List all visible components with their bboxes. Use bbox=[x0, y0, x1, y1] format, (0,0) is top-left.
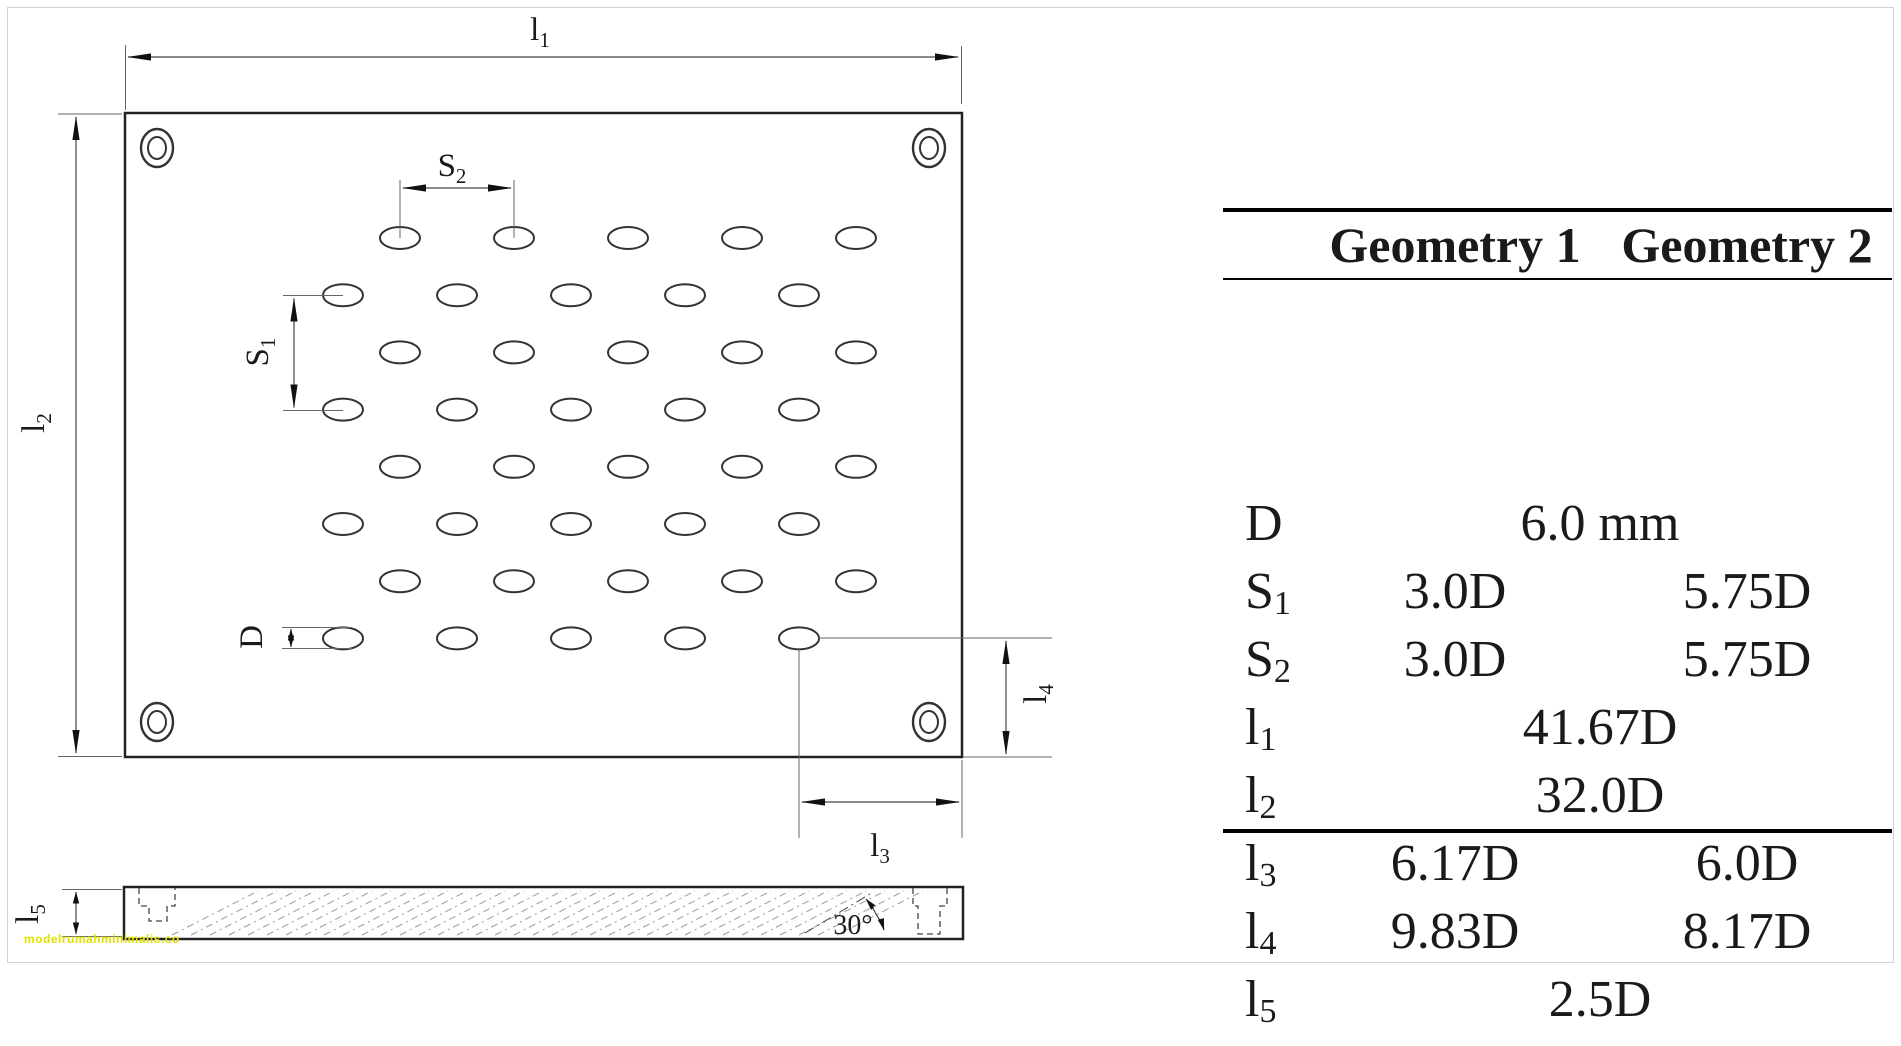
row-value-shared: 41.67D bbox=[1523, 694, 1678, 762]
table-row: l4 9.83D 8.17D bbox=[1223, 898, 1892, 966]
table-row: l1 41.67D bbox=[1223, 694, 1892, 762]
row-label: l5 bbox=[1245, 966, 1276, 1046]
hole-array bbox=[323, 227, 876, 649]
counterbore-hidden-left bbox=[139, 888, 175, 921]
label-s2: S2 bbox=[438, 148, 467, 188]
figure-page: { "page": { "background": "#ffffff", "fr… bbox=[0, 0, 1901, 970]
corner-hole-bottom-right bbox=[913, 703, 945, 741]
label-l3: l3 bbox=[870, 828, 890, 868]
corner-hole-top-right bbox=[913, 129, 945, 167]
table-row: l2 32.0D bbox=[1223, 762, 1892, 830]
geometry-parameter-table: Geometry 1 Geometry 2 D 6.0 mm S1 3.0D 5… bbox=[1223, 208, 1892, 833]
table-header-rule bbox=[1223, 278, 1892, 280]
row-value-geometry-1: 9.83D bbox=[1391, 898, 1520, 966]
table-bottom-rule bbox=[1223, 829, 1892, 833]
corner-hole-bottom-left bbox=[141, 703, 173, 741]
table-row: l5 2.5D bbox=[1223, 966, 1892, 1034]
label-d: D bbox=[234, 625, 270, 649]
row-value-geometry-2: 5.75D bbox=[1683, 558, 1812, 626]
table-row: D 6.0 mm bbox=[1223, 490, 1892, 558]
extension-lines bbox=[58, 45, 1052, 937]
watermark: modelrumahminimalis.co bbox=[24, 932, 180, 946]
column-header-geometry-2: Geometry 2 bbox=[1621, 212, 1872, 278]
row-value-geometry-1: 3.0D bbox=[1404, 558, 1507, 626]
label-s1: S1 bbox=[240, 338, 280, 367]
column-header-geometry-1: Geometry 1 bbox=[1329, 212, 1580, 278]
label-l4: l4 bbox=[1018, 684, 1058, 704]
technical-drawing: l1 l2 S2 S1 D l3 l4 l5 30° bbox=[0, 0, 1120, 970]
label-l5: l5 bbox=[10, 904, 50, 924]
label-l2: l2 bbox=[16, 413, 56, 433]
row-value-shared: 32.0D bbox=[1536, 762, 1665, 830]
table-row: S1 3.0D 5.75D bbox=[1223, 558, 1892, 626]
row-value-geometry-2: 5.75D bbox=[1683, 626, 1812, 694]
row-value-geometry-2: 6.0D bbox=[1696, 830, 1799, 898]
table-row: l3 6.17D 6.0D bbox=[1223, 830, 1892, 898]
corner-hole-top-left bbox=[141, 129, 173, 167]
dim-angle-down bbox=[876, 914, 884, 930]
label-angle-30: 30° bbox=[833, 910, 872, 941]
row-value-geometry-2: 8.17D bbox=[1683, 898, 1812, 966]
dimension-lines bbox=[76, 57, 1006, 934]
plate-top-view bbox=[125, 113, 962, 757]
table-row: S2 3.0D 5.75D bbox=[1223, 626, 1892, 694]
counterbore-hidden-right bbox=[913, 888, 947, 934]
section-hatch-lines bbox=[172, 891, 923, 935]
row-value-geometry-1: 6.17D bbox=[1391, 830, 1520, 898]
row-value-shared: 2.5D bbox=[1549, 966, 1652, 1034]
row-value-shared: 6.0 mm bbox=[1521, 490, 1680, 558]
row-value-geometry-1: 3.0D bbox=[1404, 626, 1507, 694]
table-header-row: Geometry 1 Geometry 2 bbox=[1223, 212, 1892, 278]
label-l1: l1 bbox=[530, 12, 550, 52]
